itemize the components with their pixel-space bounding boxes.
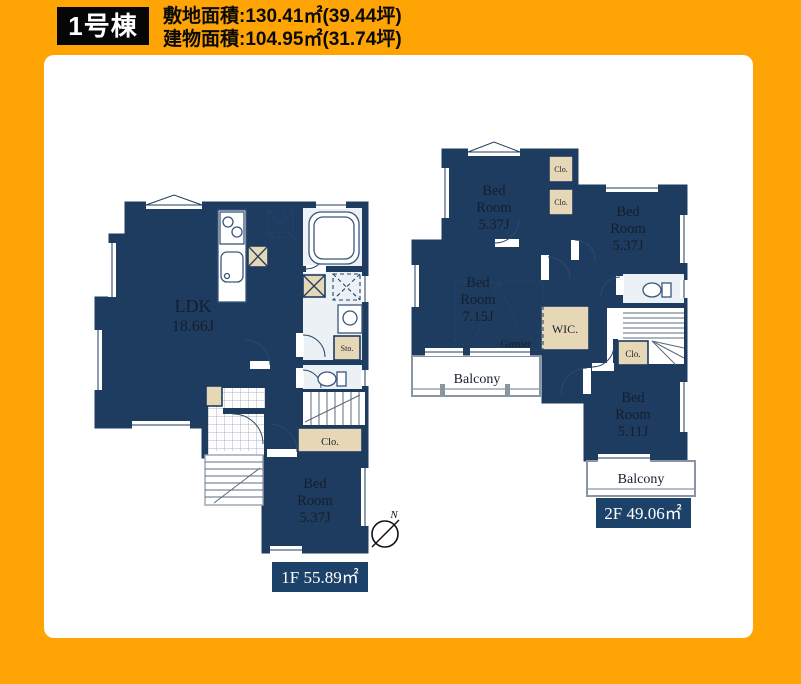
storage-label: Sto.	[341, 344, 354, 353]
compass-north-label: N	[389, 509, 398, 521]
svg-text:5.37J: 5.37J	[299, 510, 330, 526]
svg-text:5.11J: 5.11J	[618, 424, 649, 440]
toilet-2f-icon	[643, 283, 671, 297]
closet-2f-c-label: Clo.	[625, 349, 640, 359]
balcony-south-label: Balcony	[618, 472, 665, 487]
closet-1f-label: Clo.	[321, 437, 339, 448]
svg-text:5.37J: 5.37J	[478, 217, 509, 233]
bedroom-se-label: Bed	[621, 390, 645, 406]
svg-text:Room: Room	[460, 292, 496, 308]
shoe-cabinet-icon	[206, 386, 222, 406]
cupboard-icon	[248, 246, 268, 267]
bedroom-w-label: Bed	[466, 275, 490, 291]
entrance-steps	[205, 455, 263, 505]
toilet-icon	[318, 372, 346, 386]
ldk-size-label: 18.66J	[172, 318, 214, 335]
svg-text:Room: Room	[615, 407, 651, 423]
svg-text:7.15J: 7.15J	[462, 309, 493, 325]
wic-label: WIC.	[552, 322, 578, 336]
svg-text:5.37J: 5.37J	[612, 238, 643, 254]
floor2-area-label: 2F 49.06㎡	[604, 504, 681, 523]
floor1-plan: LDK 18.66J Bed Room 5.37J Clo. Sto. 1F 5…	[94, 195, 369, 592]
closet-2f-a-label: Clo.	[554, 165, 568, 174]
bathtub-icon	[309, 212, 359, 264]
compass-icon: N	[372, 509, 399, 547]
kitchen-counter-icon	[218, 210, 246, 302]
flyer-frame: 1号棟 敷地面積:130.41㎡(39.44坪) 建物面積:104.95㎡(31…	[0, 0, 801, 684]
washbasin-icon	[338, 305, 362, 333]
closet-2f-b-label: Clo.	[554, 198, 568, 207]
svg-text:Room: Room	[610, 221, 646, 237]
floor1-area-label: 1F 55.89㎡	[281, 568, 358, 587]
svg-text:Room: Room	[297, 493, 333, 509]
staircase-1f	[303, 392, 365, 425]
bedroom-ne-label: Bed	[616, 204, 640, 220]
balcony-west-label: Balcony	[454, 372, 501, 387]
bedroom-1f-label: Bed	[303, 476, 327, 492]
floorplan-drawing: LDK 18.66J Bed Room 5.37J Clo. Sto. 1F 5…	[0, 0, 801, 684]
grenier-label: Grenier	[501, 339, 532, 350]
washing-machine-icon	[303, 275, 325, 297]
bedroom-nw-label: Bed	[482, 183, 506, 199]
ldk-label: LDK	[175, 296, 212, 316]
floor2-plan: Bed Room 5.37J Bed Room 5.37J Bed Room 7…	[411, 142, 695, 528]
svg-text:Room: Room	[476, 200, 512, 216]
